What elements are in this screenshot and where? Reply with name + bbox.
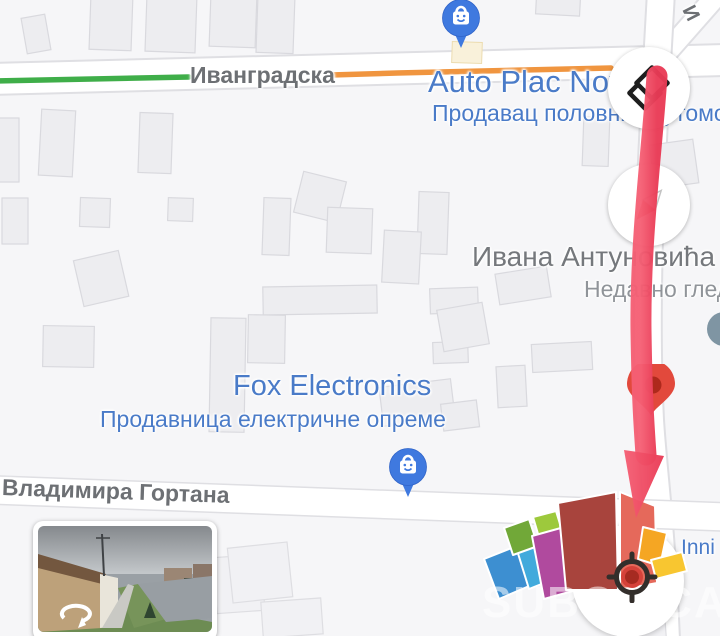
shopping-pin-fox[interactable] — [388, 438, 428, 498]
streetview-photo — [38, 526, 212, 632]
place-label-auto-plac[interactable]: Auto Plac Nov — [428, 64, 624, 100]
layers-icon — [626, 65, 672, 111]
shopping-bag-pin-icon — [388, 438, 428, 498]
red-marker-icon — [625, 364, 677, 416]
location-target[interactable] — [606, 551, 658, 603]
location-target-icon — [606, 551, 658, 603]
red-marker-pin[interactable] — [625, 364, 677, 416]
streetview-thumbnail[interactable] — [33, 521, 217, 636]
shopping-bag-pin-icon — [441, 0, 481, 49]
place-label-inni[interactable]: Inni — [681, 536, 715, 560]
place-label-fox-electronics[interactable]: Fox Electronics — [233, 370, 431, 403]
compass-button[interactable] — [608, 164, 690, 246]
map-canvas[interactable]: Иванградска Владимира Гортана Ивана Анту… — [0, 0, 720, 636]
shopping-pin-auto-plac[interactable] — [441, 0, 481, 49]
compass-icon — [626, 182, 672, 228]
layers-button[interactable] — [608, 47, 690, 129]
